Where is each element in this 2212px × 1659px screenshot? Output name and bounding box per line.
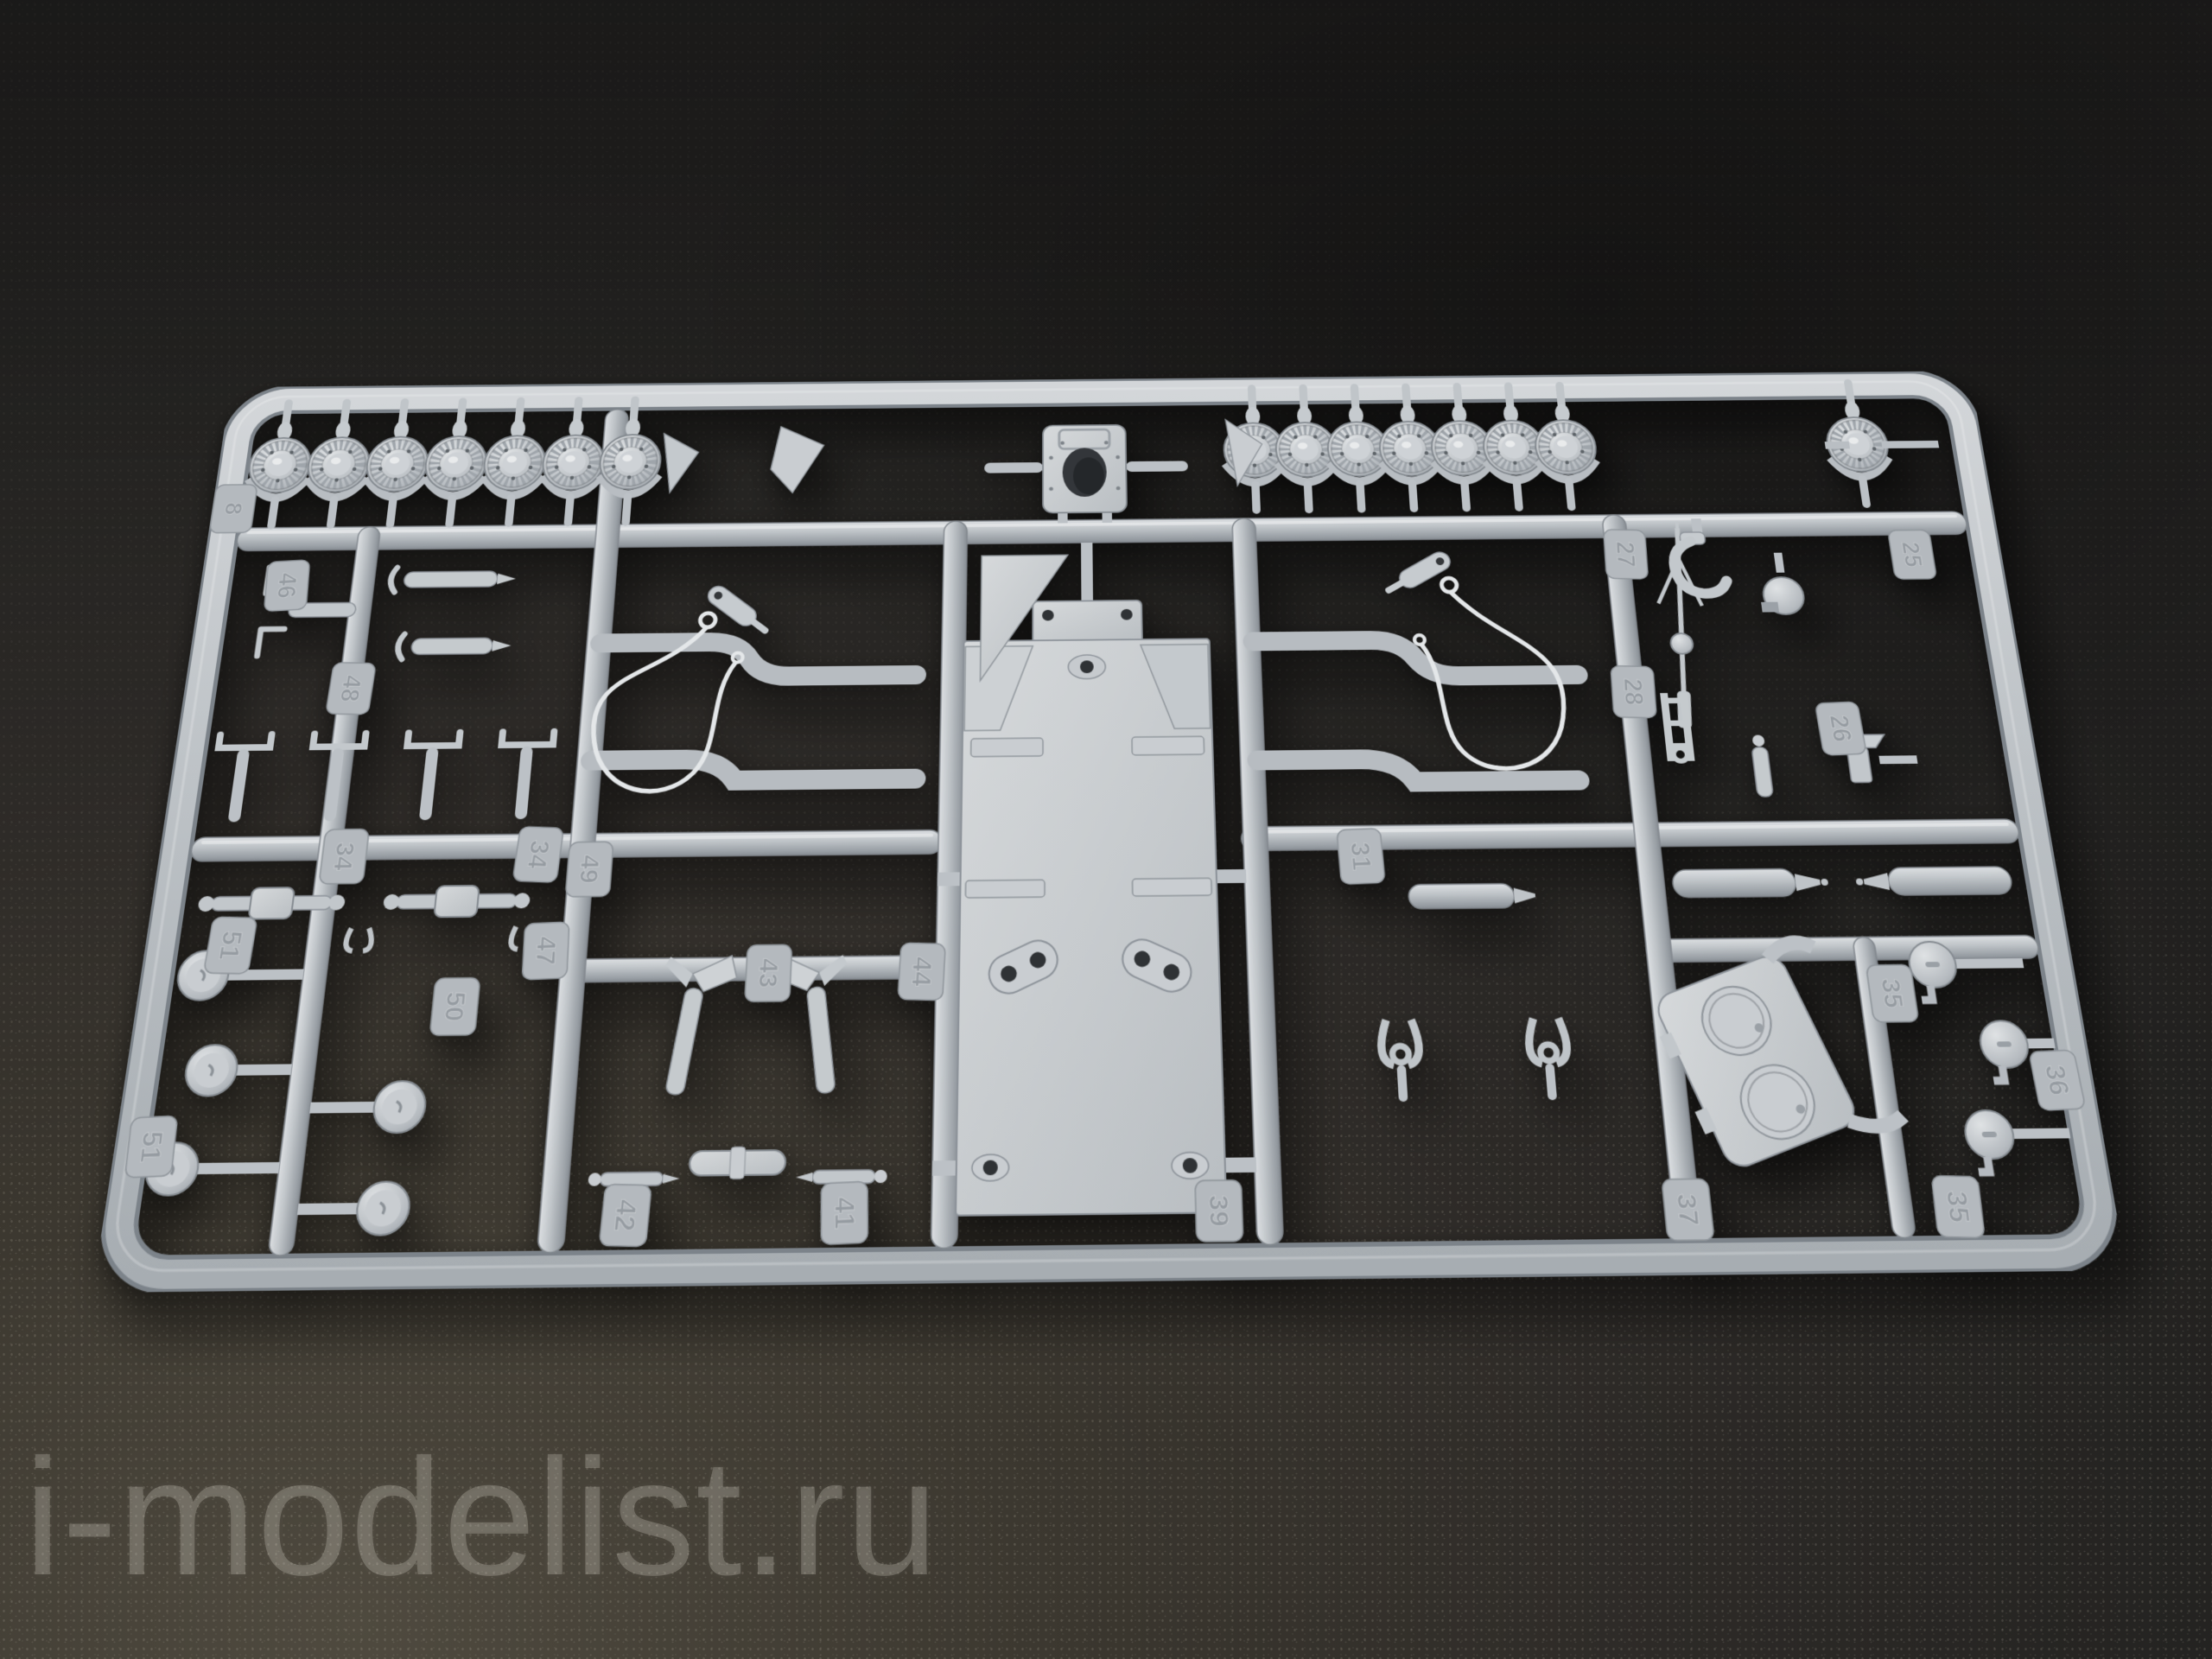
svg-text:48: 48: [334, 675, 367, 702]
part-number-tag: 51: [204, 917, 257, 974]
svg-text:46: 46: [271, 572, 302, 600]
flat-flap-part: [770, 426, 825, 493]
part-number-tag: 35: [1931, 1176, 1985, 1238]
svg-text:31: 31: [1344, 842, 1376, 871]
dome-ball-part: [1755, 552, 1807, 614]
part-number-tag: 41: [821, 1181, 868, 1244]
part-number-tag: 42: [599, 1185, 652, 1247]
muffler-parts: [1671, 867, 2013, 898]
sprue-photo-svg: ★ ZVEZDA 2014: [92, 371, 2126, 1293]
svg-text:27: 27: [1611, 541, 1640, 567]
svg-text:35: 35: [1940, 1191, 1974, 1224]
svg-text:25: 25: [1896, 542, 1928, 568]
part-number-tag: 28: [1611, 665, 1656, 717]
svg-text:41: 41: [829, 1197, 860, 1230]
part-number-tag: 34: [319, 829, 369, 884]
svg-text:34: 34: [327, 842, 360, 871]
svg-text:36: 36: [2038, 1065, 2075, 1096]
towing-shackle-parts: [207, 732, 554, 823]
watermark-text: i-modelist.ru: [24, 1421, 939, 1612]
part-number-tag: 44: [898, 943, 945, 1001]
part-number-tag: 8: [209, 485, 257, 533]
svg-text:35: 35: [1875, 978, 1910, 1008]
part-number-tag: 50: [429, 978, 480, 1036]
svg-text:51: 51: [213, 931, 247, 961]
svg-text:47: 47: [530, 936, 561, 966]
plastic-sprue: ★ ZVEZDA 2014: [92, 371, 2126, 1293]
svg-text:8: 8: [219, 502, 248, 515]
part-number-tag: 43: [745, 944, 792, 1001]
svg-text:50: 50: [438, 991, 471, 1021]
tow-cable-part-right: [1249, 548, 1587, 784]
wheel-gate: [1825, 442, 1850, 449]
part-number-tag: 46: [264, 560, 310, 612]
svg-text:26: 26: [1823, 715, 1857, 743]
tow-cable-part-left: [588, 581, 920, 791]
part-number-tag: 34: [512, 827, 563, 883]
svg-text:44: 44: [906, 957, 938, 987]
part-number-tag: 39: [1195, 1180, 1243, 1242]
part-number-tag: 37: [1662, 1179, 1714, 1240]
svg-text:42: 42: [607, 1199, 642, 1232]
svg-text:28: 28: [1618, 678, 1648, 706]
svg-text:37: 37: [1670, 1193, 1705, 1225]
jack-part: [1750, 734, 1773, 797]
part-number-tag: 51: [124, 1116, 177, 1178]
svg-text:49: 49: [573, 855, 605, 883]
svg-text:51: 51: [134, 1130, 168, 1163]
part-number-tag: 49: [565, 842, 613, 897]
part-number-tag: 48: [326, 663, 376, 715]
svg-text:34: 34: [521, 840, 555, 869]
part-number-tag: 26: [1815, 702, 1866, 755]
fork-bracket-parts: [1372, 883, 1571, 1102]
wheel-gate: [1881, 441, 1939, 448]
flat-flap-part: [660, 433, 700, 493]
part-number-tag: 31: [1337, 829, 1385, 885]
part-number-tag: 25: [1888, 530, 1937, 579]
gearbox-housing-part: [983, 424, 1189, 524]
part-number-tag: 47: [522, 922, 569, 980]
part-number-tag: 27: [1604, 530, 1649, 580]
svg-text:43: 43: [753, 958, 784, 988]
svg-text:39: 39: [1203, 1195, 1235, 1227]
part-number-tag: 35: [1866, 965, 1919, 1022]
